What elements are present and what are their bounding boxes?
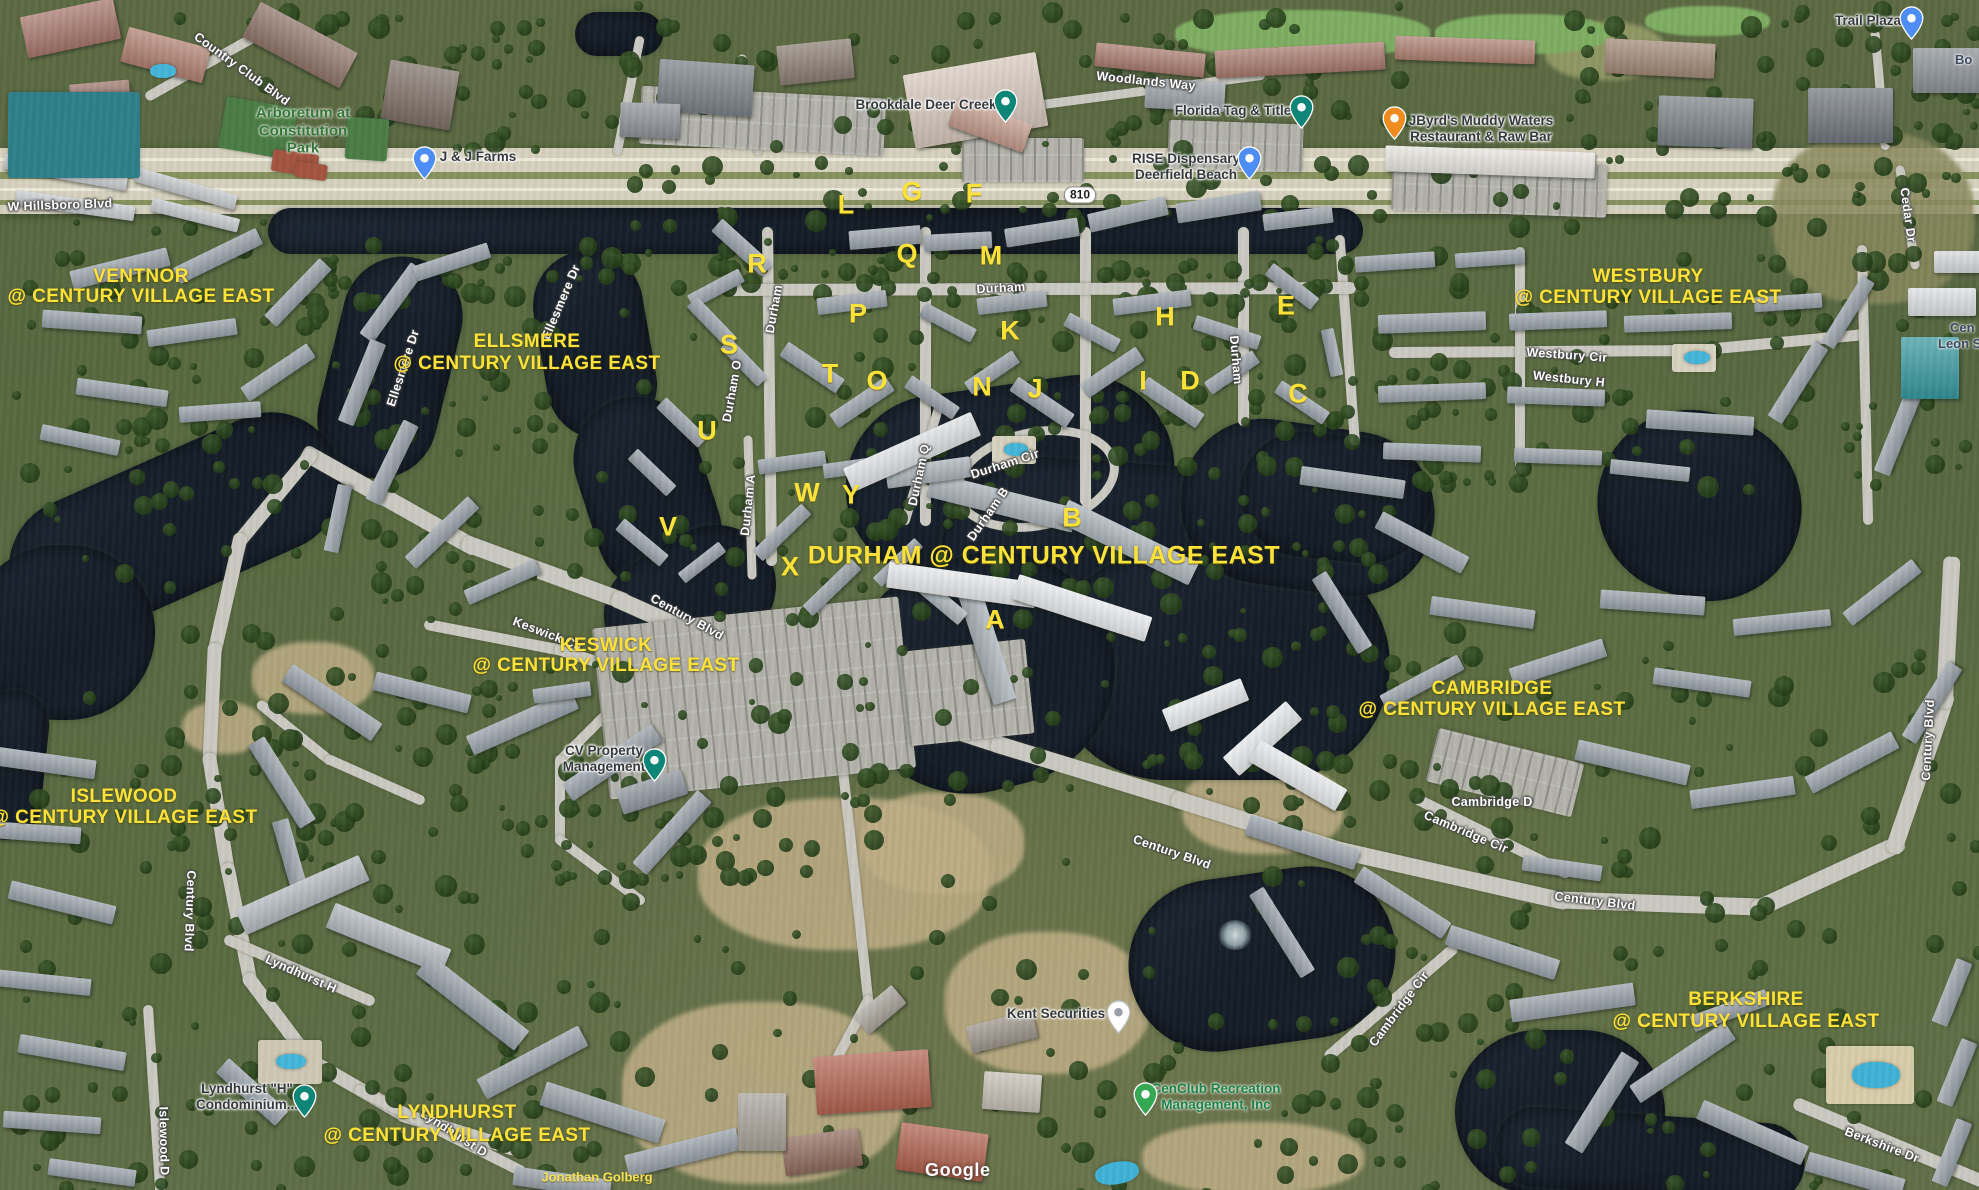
- tree-canopy: [1642, 657, 1649, 664]
- tree-canopy: [1292, 1094, 1312, 1114]
- tree-canopy: [561, 840, 572, 851]
- tree-canopy: [636, 873, 649, 886]
- poi-label[interactable]: Arboretum atConstitutionPark: [256, 104, 350, 157]
- tree-canopy: [1111, 260, 1131, 280]
- building-footprint: [1509, 310, 1608, 330]
- tree-canopy: [1564, 219, 1579, 234]
- tree-canopy: [1756, 206, 1777, 227]
- tree-canopy: [499, 805, 505, 811]
- building-footprint: [813, 1049, 932, 1115]
- tree-canopy: [202, 434, 222, 454]
- building-footprint: [1689, 775, 1796, 808]
- building-footprint: [1936, 1037, 1977, 1106]
- building-letter-marker: H: [1155, 302, 1175, 333]
- tree-canopy: [1421, 954, 1428, 961]
- tree-canopy: [467, 756, 485, 774]
- tree-canopy: [1963, 109, 1970, 116]
- tree-canopy: [368, 17, 390, 39]
- tree-canopy: [1493, 192, 1508, 207]
- tree-canopy: [319, 14, 340, 35]
- tree-canopy: [447, 273, 463, 289]
- poi-label-line: Park: [256, 140, 350, 158]
- tree-canopy: [519, 85, 533, 99]
- tree-canopy: [865, 702, 875, 712]
- community-label: BERKSHIRE: [1688, 989, 1804, 1011]
- tree-canopy: [503, 256, 513, 266]
- tree-canopy: [1208, 1013, 1224, 1029]
- tree-canopy: [610, 1031, 631, 1052]
- tree-canopy: [29, 789, 49, 809]
- tree-canopy: [1696, 691, 1712, 707]
- tree-canopy: [1052, 331, 1073, 352]
- tree-canopy: [513, 427, 520, 434]
- tree-canopy: [155, 1178, 168, 1190]
- tree-canopy: [263, 474, 283, 494]
- tree-canopy: [428, 827, 438, 837]
- tree-canopy: [1092, 471, 1102, 481]
- tree-canopy: [857, 768, 877, 788]
- tree-canopy: [864, 805, 882, 823]
- tree-canopy: [1092, 454, 1101, 463]
- tree-canopy: [1612, 389, 1629, 406]
- tree-canopy: [1337, 957, 1358, 978]
- poi-label[interactable]: J & J Farms: [440, 149, 517, 165]
- health-pin-icon[interactable]: [993, 89, 1018, 128]
- tree-canopy: [857, 582, 868, 593]
- tree-canopy: [502, 819, 514, 831]
- tree-canopy: [175, 739, 185, 749]
- building-footprint: [1931, 957, 1972, 1026]
- tree-canopy: [140, 861, 152, 873]
- poi-label[interactable]: CV PropertyManagement: [563, 743, 646, 775]
- tree-canopy: [1238, 495, 1249, 506]
- tree-canopy: [1002, 780, 1014, 792]
- tree-canopy: [1224, 261, 1242, 279]
- tree-canopy: [1700, 1142, 1715, 1157]
- tree-canopy: [1750, 905, 1767, 922]
- tree-canopy: [1697, 476, 1718, 497]
- tree-canopy: [406, 576, 424, 594]
- tree-canopy: [1233, 628, 1246, 641]
- swimming-pool: [1852, 1062, 1900, 1088]
- tree-canopy: [1774, 676, 1794, 696]
- tree-canopy: [531, 145, 540, 154]
- tree-canopy: [1321, 1054, 1340, 1073]
- tree-canopy: [722, 946, 729, 953]
- tree-canopy: [1869, 402, 1877, 410]
- tree-canopy: [1370, 1078, 1382, 1090]
- tree-canopy: [492, 59, 502, 69]
- tree-canopy: [256, 632, 274, 650]
- tree-canopy: [766, 787, 786, 807]
- tree-canopy: [1855, 182, 1864, 191]
- tree-canopy: [509, 112, 516, 119]
- tree-canopy: [1315, 387, 1326, 398]
- tree-canopy: [1374, 1156, 1385, 1167]
- tree-canopy: [1951, 173, 1961, 183]
- building-footprint: [1383, 442, 1482, 462]
- tree-canopy: [1926, 935, 1944, 953]
- tree-canopy: [1705, 903, 1725, 923]
- tree-canopy: [174, 12, 186, 24]
- building-footprint: [1934, 251, 1979, 273]
- community-label: LYNDHURST: [397, 1102, 516, 1124]
- poi-label-line: Arboretum at: [256, 104, 350, 122]
- tree-canopy: [1789, 321, 1795, 327]
- building-footprint: [415, 954, 529, 1051]
- tree-canopy: [1093, 577, 1114, 598]
- poi-label[interactable]: Lyndhurst "H"Condominium...: [196, 1081, 298, 1113]
- tree-canopy: [330, 607, 344, 621]
- tree-canopy: [671, 280, 687, 296]
- bank-pin-icon[interactable]: [1289, 95, 1314, 134]
- tree-canopy: [1394, 1156, 1406, 1168]
- building-footprint: [1732, 608, 1831, 635]
- tree-canopy: [531, 94, 546, 109]
- tree-canopy: [1384, 655, 1401, 672]
- edge-clipped-poi-label[interactable]: Cen: [1950, 320, 1975, 336]
- tree-canopy: [163, 523, 176, 536]
- poi-label-line: Florida Tag & Title: [1175, 103, 1292, 119]
- tree-canopy: [790, 672, 804, 686]
- tree-canopy: [528, 40, 545, 57]
- tree-canopy: [1178, 39, 1188, 49]
- building-letter-marker: E: [1277, 291, 1295, 322]
- tree-canopy: [70, 250, 86, 266]
- restaurant-pin-icon[interactable]: [1382, 106, 1407, 145]
- tree-canopy: [292, 761, 298, 767]
- tree-canopy: [1409, 788, 1425, 804]
- building-footprint: [776, 38, 855, 86]
- tree-canopy: [435, 875, 456, 896]
- tree-canopy: [397, 707, 417, 727]
- tree-canopy: [1694, 767, 1704, 777]
- tree-canopy: [605, 115, 619, 129]
- tree-canopy: [308, 855, 314, 861]
- tree-canopy: [1444, 622, 1466, 644]
- tree-canopy: [504, 44, 513, 53]
- poi-label-line: RISE Dispensary: [1132, 151, 1240, 167]
- tree-canopy: [150, 953, 171, 974]
- tree-canopy: [395, 15, 403, 23]
- tree-canopy: [134, 764, 149, 779]
- tree-canopy: [300, 460, 310, 470]
- satellite-map-canvas[interactable]: ABCDEFGHIJKLMNOPQRSTUVWXYVENTNOR@ CENTUR…: [0, 0, 1979, 1190]
- poi-label-line: CV Property: [563, 743, 646, 759]
- tree-canopy: [1821, 835, 1837, 851]
- tree-canopy: [804, 840, 820, 856]
- building-letter-marker: A: [985, 605, 1005, 636]
- tree-canopy: [705, 1088, 718, 1101]
- tree-canopy: [859, 677, 868, 686]
- tree-canopy: [1973, 946, 1979, 959]
- tree-canopy: [1952, 881, 1967, 896]
- community-tagline: @ CENTURY VILLAGE EAST: [1359, 699, 1626, 721]
- tree-canopy: [1134, 443, 1147, 456]
- building-letter-marker: V: [659, 512, 677, 543]
- tree-canopy: [1891, 42, 1912, 63]
- tree-canopy: [1477, 1039, 1484, 1046]
- tree-canopy: [59, 1181, 73, 1190]
- poi-label[interactable]: Brookdale Deer Creek: [855, 97, 996, 113]
- tree-canopy: [1741, 16, 1762, 37]
- tree-canopy: [245, 1121, 258, 1134]
- tree-canopy: [1594, 684, 1601, 691]
- tree-canopy: [224, 828, 237, 841]
- recreation-pin-icon[interactable]: [1133, 1082, 1158, 1121]
- grocery-cart-pin-icon[interactable]: [412, 146, 437, 185]
- tree-canopy: [1513, 184, 1529, 200]
- tree-canopy: [1130, 321, 1148, 339]
- tree-canopy: [1522, 903, 1533, 914]
- tree-canopy: [168, 357, 181, 370]
- tree-canopy: [713, 34, 731, 52]
- tree-canopy: [805, 210, 827, 232]
- tree-canopy: [508, 682, 518, 692]
- tree-canopy: [1645, 1113, 1658, 1126]
- tree-canopy: [83, 691, 96, 704]
- building-footprint: [7, 880, 116, 925]
- tree-canopy: [1736, 1084, 1753, 1101]
- building-footprint: [380, 59, 459, 130]
- tree-canopy: [533, 505, 544, 516]
- tree-canopy: [641, 702, 648, 709]
- tree-canopy: [64, 466, 72, 474]
- tree-canopy: [1206, 788, 1213, 795]
- tree-canopy: [636, 379, 652, 395]
- tree-canopy: [1263, 78, 1281, 96]
- tree-canopy: [1874, 157, 1893, 176]
- tree-canopy: [371, 850, 385, 864]
- tree-canopy: [856, 704, 864, 712]
- tree-canopy: [20, 940, 32, 952]
- tree-canopy: [376, 561, 387, 572]
- building-footprint: [1767, 340, 1828, 424]
- tree-canopy: [1281, 1110, 1288, 1117]
- tree-canopy: [1925, 455, 1944, 474]
- tree-canopy: [1865, 36, 1882, 53]
- tree-canopy: [1368, 564, 1388, 584]
- poi-label-line: Management: [563, 759, 646, 775]
- tree-canopy: [112, 1086, 128, 1102]
- tree-canopy: [88, 1082, 99, 1093]
- tree-canopy: [345, 803, 364, 822]
- building-letter-marker: P: [849, 299, 867, 330]
- tree-canopy: [620, 571, 631, 582]
- route-810-shield: 810: [1064, 187, 1096, 204]
- tree-canopy: [1720, 397, 1730, 407]
- building-letter-marker: B: [1062, 503, 1082, 534]
- tree-canopy: [661, 874, 669, 882]
- tree-canopy: [678, 710, 687, 719]
- tree-canopy: [455, 449, 463, 457]
- tree-canopy: [1743, 484, 1755, 496]
- tree-canopy: [1208, 467, 1221, 480]
- community-tagline: @ CENTURY VILLAGE EAST: [394, 353, 661, 375]
- tree-canopy: [1045, 711, 1061, 727]
- tree-canopy: [668, 20, 680, 32]
- shopping-bag-pin-icon[interactable]: [1237, 146, 1262, 185]
- tree-canopy: [1120, 13, 1130, 23]
- tree-canopy: [464, 934, 485, 955]
- tree-canopy: [842, 743, 859, 760]
- tree-canopy: [1806, 48, 1824, 66]
- tree-canopy: [676, 871, 684, 879]
- building-letter-marker: C: [1288, 379, 1308, 410]
- tree-canopy: [1890, 65, 1902, 77]
- tree-canopy: [931, 45, 950, 64]
- tree-canopy: [1406, 947, 1419, 960]
- tree-canopy: [179, 1150, 198, 1169]
- tree-canopy: [1666, 1175, 1684, 1190]
- tree-canopy: [1509, 216, 1531, 238]
- tree-canopy: [581, 111, 589, 119]
- tree-canopy: [567, 89, 585, 107]
- tree-canopy: [456, 86, 470, 100]
- tree-canopy: [760, 160, 775, 175]
- poi-label-line: JByrd's Muddy Waters: [1409, 113, 1554, 129]
- tree-canopy: [715, 582, 728, 595]
- tree-canopy: [1662, 1121, 1675, 1134]
- tree-canopy: [278, 940, 285, 947]
- poi-label-line: Restaurant & Raw Bar: [1409, 129, 1554, 145]
- tree-canopy: [395, 905, 403, 913]
- shopping-bag-pin-icon[interactable]: [1899, 6, 1924, 45]
- tree-canopy: [845, 167, 852, 174]
- poi-label[interactable]: JByrd's Muddy WatersRestaurant & Raw Bar: [1409, 113, 1554, 145]
- edge-clipped-poi-label[interactable]: Leon Sla: [1938, 336, 1979, 352]
- tree-canopy: [573, 1146, 589, 1162]
- tree-canopy: [1348, 1118, 1367, 1137]
- tree-canopy: [1810, 729, 1828, 747]
- community-tagline: @ CENTURY VILLAGE EAST: [1515, 287, 1782, 309]
- building-footprint: [1842, 558, 1922, 626]
- place-pin-icon[interactable]: [642, 748, 667, 787]
- tree-canopy: [1072, 1142, 1093, 1163]
- tree-canopy: [1201, 336, 1216, 351]
- tree-canopy: [627, 176, 643, 192]
- tree-canopy: [353, 292, 373, 312]
- road-name-label: Durham: [976, 280, 1026, 297]
- tree-canopy: [1439, 471, 1453, 485]
- poi-label[interactable]: Trail Plaza: [1835, 13, 1901, 29]
- edge-clipped-poi-label[interactable]: Bo: [1955, 52, 1972, 68]
- tree-canopy: [532, 438, 548, 454]
- tree-canopy: [179, 486, 194, 501]
- building-footprint: [532, 681, 592, 704]
- tree-canopy: [757, 860, 773, 876]
- tree-canopy: [1034, 270, 1047, 283]
- tree-canopy: [1331, 100, 1350, 119]
- tree-canopy: [1177, 457, 1197, 477]
- tree-canopy: [1915, 1090, 1932, 1107]
- building-letter-marker: K: [1000, 316, 1020, 347]
- building-footprint: [146, 317, 237, 346]
- building-footprint: [41, 310, 142, 335]
- tree-canopy: [1663, 641, 1674, 652]
- poi-label[interactable]: CenClub RecreationManagement, Inc: [1151, 1081, 1280, 1113]
- tree-canopy: [1344, 434, 1360, 450]
- tree-canopy: [1873, 672, 1895, 694]
- tree-canopy: [1488, 478, 1496, 486]
- tree-canopy: [517, 20, 533, 36]
- tree-canopy: [192, 375, 201, 384]
- tree-canopy: [458, 44, 467, 53]
- tree-canopy: [1430, 353, 1448, 371]
- tree-canopy: [635, 1067, 655, 1087]
- building-letter-marker: X: [781, 552, 799, 583]
- tree-canopy: [1013, 609, 1033, 629]
- tree-canopy: [304, 769, 316, 781]
- tree-canopy: [1061, 1143, 1071, 1153]
- poi-label[interactable]: Jonathan Golberg: [541, 1169, 652, 1184]
- tree-canopy: [251, 1160, 262, 1171]
- tree-canopy: [477, 286, 494, 303]
- tree-canopy: [517, 1002, 538, 1023]
- poi-label-line: CenClub Recreation: [1151, 1081, 1280, 1097]
- tree-canopy: [619, 308, 629, 318]
- building-footprint: [982, 1071, 1043, 1113]
- tree-canopy: [733, 834, 740, 841]
- tree-canopy: [1079, 55, 1092, 68]
- tree-canopy: [151, 226, 161, 236]
- community-label: VENTNOR: [93, 266, 189, 288]
- tree-canopy: [1054, 392, 1062, 400]
- tree-canopy: [526, 56, 533, 63]
- poi-label[interactable]: RISE DispensaryDeerfield Beach: [1132, 151, 1240, 183]
- poi-label-line: Jonathan Golberg: [541, 1169, 652, 1184]
- tree-canopy: [1327, 413, 1341, 427]
- tree-canopy: [73, 219, 80, 226]
- business-pin-icon[interactable]: [1106, 1000, 1131, 1039]
- tree-canopy: [991, 989, 1009, 1007]
- tree-canopy: [1665, 200, 1684, 219]
- tree-canopy: [342, 942, 358, 958]
- tree-canopy: [129, 469, 145, 485]
- tree-canopy: [1367, 190, 1377, 200]
- tree-canopy: [773, 1029, 781, 1037]
- tree-canopy: [164, 581, 177, 594]
- poi-label[interactable]: Florida Tag & Title: [1175, 103, 1292, 119]
- tree-canopy: [1852, 252, 1873, 273]
- tree-canopy: [973, 39, 983, 49]
- tree-canopy: [249, 765, 261, 777]
- tree-canopy: [1522, 1128, 1540, 1146]
- tree-canopy: [20, 463, 41, 484]
- tree-canopy: [417, 1147, 433, 1163]
- tree-canopy: [1622, 418, 1639, 435]
- tree-canopy: [1262, 647, 1282, 667]
- tree-canopy: [908, 363, 916, 371]
- tree-canopy: [1726, 744, 1733, 751]
- tree-canopy: [1931, 438, 1941, 448]
- building-footprint: [1507, 386, 1606, 406]
- place-pin-icon[interactable]: [292, 1084, 317, 1123]
- tree-canopy: [449, 401, 455, 407]
- tree-canopy: [864, 203, 872, 211]
- tree-canopy: [1007, 404, 1026, 423]
- tree-canopy: [840, 508, 860, 528]
- poi-label[interactable]: Kent Securities: [1007, 1006, 1105, 1022]
- tree-canopy: [1241, 417, 1250, 426]
- tree-canopy: [183, 221, 198, 236]
- google-watermark[interactable]: Google: [925, 1160, 991, 1181]
- tree-canopy: [1617, 849, 1632, 864]
- building-footprint: [1604, 38, 1716, 79]
- tree-canopy: [1134, 267, 1145, 278]
- tree-canopy: [1354, 276, 1369, 291]
- tree-canopy: [535, 815, 548, 828]
